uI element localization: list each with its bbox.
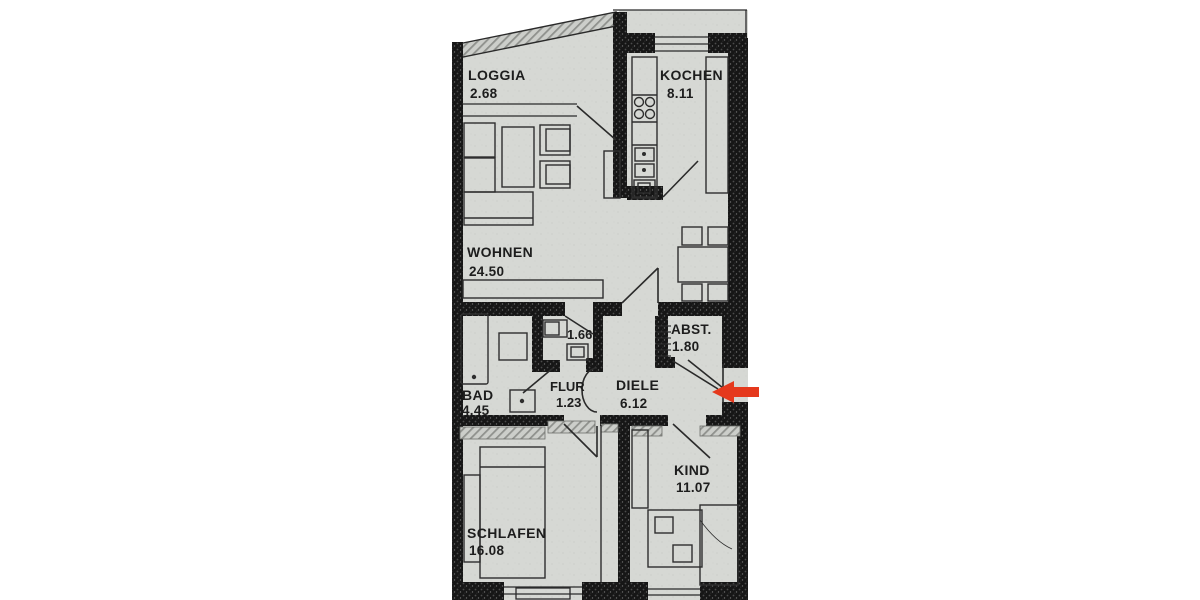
wall-bad-wc (532, 302, 543, 364)
room-label-abst: ABST. (671, 322, 712, 337)
room-label-kind: KIND (674, 462, 710, 478)
floor-plan-page: LOGGIA 2.68 KOCHEN 8.11 WOHNEN 24.50 ABS… (0, 0, 1200, 600)
floor-plan-drawing: LOGGIA 2.68 KOCHEN 8.11 WOHNEN 24.50 ABS… (0, 0, 1200, 600)
room-area-abst: 1.80 (672, 339, 699, 354)
room-area-schlafen: 16.08 (469, 543, 504, 558)
room-area-wc: 1.66 (567, 327, 592, 342)
room-label-loggia: LOGGIA (468, 67, 526, 83)
room-label-kochen: KOCHEN (660, 67, 723, 83)
wall-wc-bottom-left (532, 360, 560, 372)
room-label-bad: BAD (462, 387, 494, 403)
room-area-kochen: 8.11 (667, 86, 694, 101)
wall-mid-b (593, 302, 622, 316)
room-area-flur: 1.23 (556, 395, 581, 410)
room-label-flur: FLUR (550, 379, 585, 394)
room-area-wohnen: 24.50 (469, 264, 504, 279)
room-area-loggia: 2.68 (470, 86, 498, 101)
wall-right-upper (728, 38, 748, 308)
wall-abst-bottom (655, 357, 675, 368)
room-label-schlafen: SCHLAFEN (467, 525, 546, 541)
wall-shaft-right (618, 426, 630, 582)
wall-bottom-a (452, 582, 504, 600)
wall-bottom-b (582, 582, 648, 600)
wall-lower-c (706, 415, 748, 426)
room-area-bad: 4.45 (462, 403, 490, 418)
wall-kitchen-top-left (622, 33, 655, 53)
wall-right-mid-upper (722, 316, 748, 368)
wall-mid-c (658, 302, 748, 316)
wall-wc-right (593, 314, 603, 365)
room-area-kind: 11.07 (676, 480, 711, 495)
room-label-wohnen: WOHNEN (467, 244, 533, 260)
room-area-diele: 6.12 (620, 396, 647, 411)
room-label-diele: DIELE (616, 377, 659, 393)
